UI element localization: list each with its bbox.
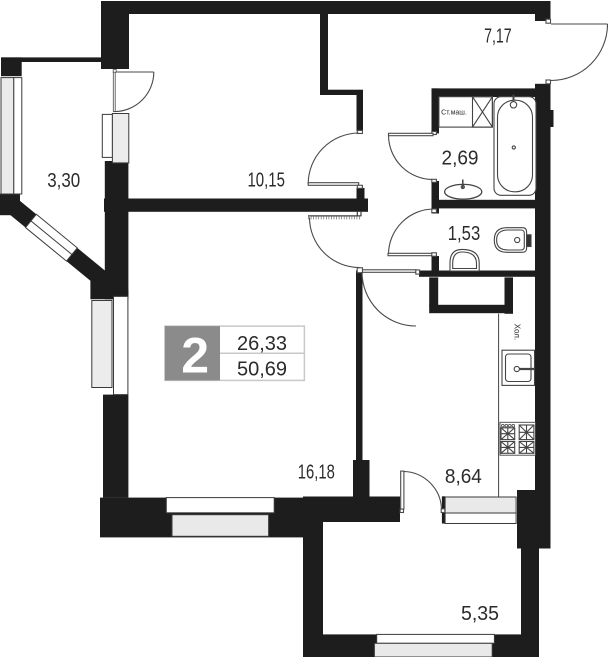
svg-text:5,35: 5,35 <box>461 603 499 625</box>
svg-text:10,15: 10,15 <box>247 169 285 191</box>
svg-text:2,69: 2,69 <box>442 148 479 170</box>
svg-text:8,64: 8,64 <box>445 466 482 488</box>
svg-text:Ст.маш.: Ст.маш. <box>441 110 467 117</box>
svg-text:26,33: 26,33 <box>237 333 287 355</box>
svg-text:1,53: 1,53 <box>448 223 481 245</box>
svg-text:2: 2 <box>181 328 209 384</box>
svg-text:3,30: 3,30 <box>47 170 80 192</box>
svg-text:16,18: 16,18 <box>298 461 335 483</box>
svg-text:7,17: 7,17 <box>484 25 512 47</box>
svg-text:Хол.: Хол. <box>513 324 522 340</box>
svg-text:50,69: 50,69 <box>237 359 287 381</box>
